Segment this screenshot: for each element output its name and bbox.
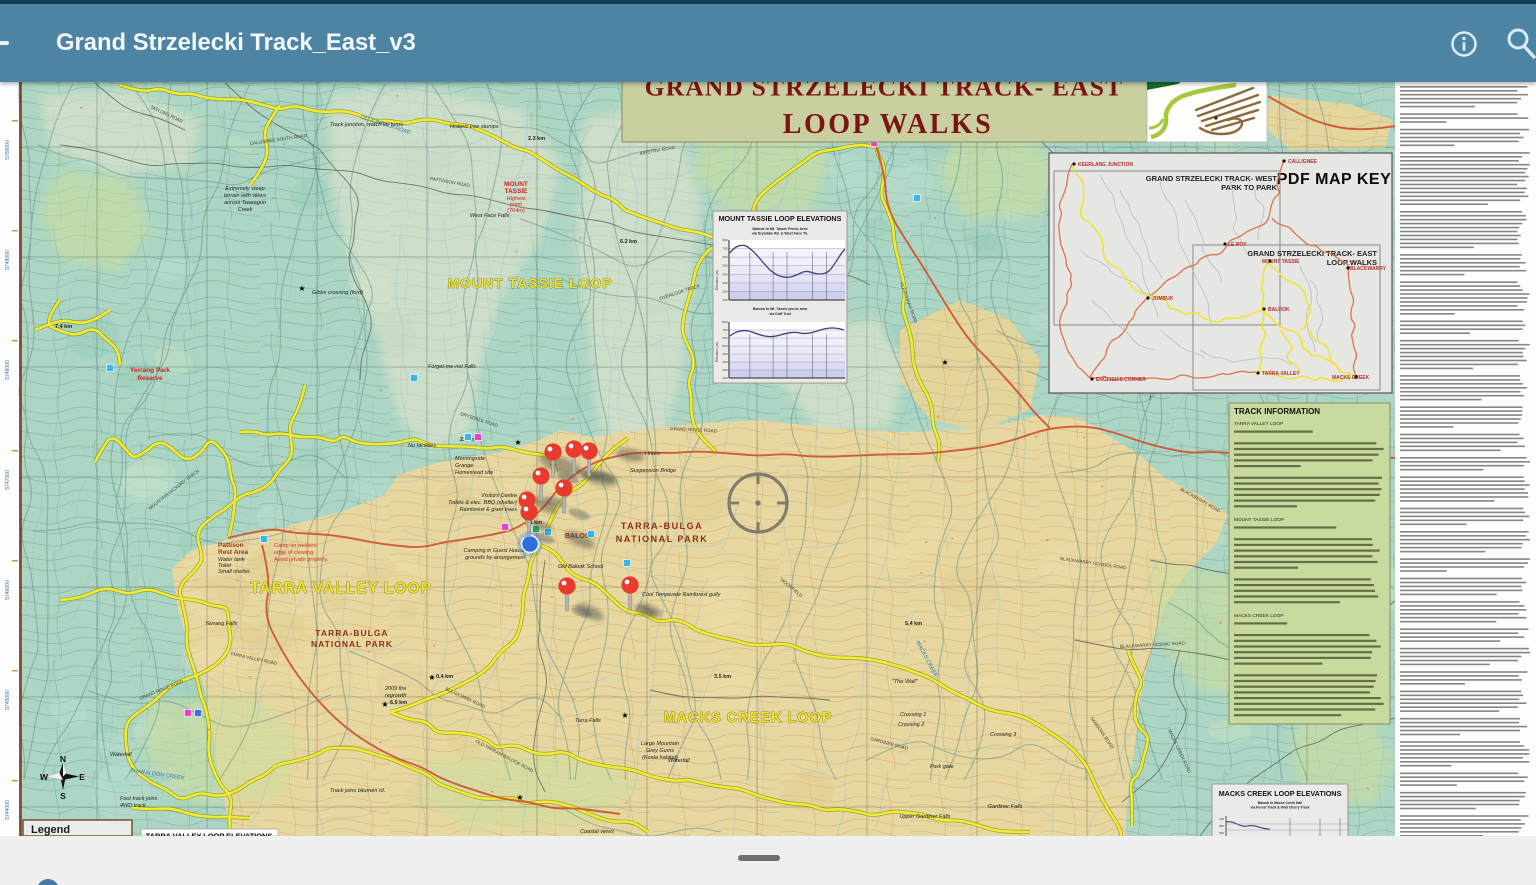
svg-text:via Drysdale Rd. & West Face T: via Drysdale Rd. & West Face Tk. [752,232,808,236]
svg-text:Forget-me-not Falls: Forget-me-not Falls [428,364,476,370]
svg-text:Gibbs crossing (ford): Gibbs crossing (ford) [312,290,363,296]
svg-text:LOOP WALKS: LOOP WALKS [783,109,993,140]
svg-text:LE ROY: LE ROY [1228,242,1247,248]
svg-text:2.3 km: 2.3 km [528,136,545,142]
svg-text:MOUNT TASSIE LOOP: MOUNT TASSIE LOOP [447,275,612,291]
svg-text:MOUNT TASSIE LOOP: MOUNT TASSIE LOOP [1234,517,1284,523]
svg-text:MOUNT TASSIE: MOUNT TASSIE [1262,259,1300,265]
svg-text:Camp on western: Camp on western [274,543,317,549]
svg-text:300: 300 [722,360,727,364]
svg-text:Camping in Guest House: Camping in Guest House [464,548,525,554]
svg-text:5745000: 5745000 [5,690,11,710]
svg-text:"The Wall": "The Wall" [892,679,919,685]
svg-text:Extremely steep: Extremely steep [225,186,264,192]
svg-text:regrowth: regrowth [385,693,406,699]
svg-text:via Duff Trail: via Duff Trail [769,312,791,316]
svg-text:100: 100 [722,376,727,380]
svg-text:TARRA-BULGA: TARRA-BULGA [621,521,703,531]
svg-text:NATIONAL PARK: NATIONAL PARK [311,639,393,649]
svg-text:6.5 km: 6.5 km [390,700,407,706]
svg-text:Coastal views: Coastal views [580,829,614,835]
svg-text:PARK TO PARK: PARK TO PARK [1221,183,1277,192]
svg-text:MOUNT: MOUNT [504,181,528,188]
svg-text:BALOOK: BALOOK [1268,307,1290,313]
svg-text:E: E [79,772,85,782]
svg-text:Large Mountain: Large Mountain [641,741,679,747]
svg-text:600: 600 [722,336,727,340]
svg-text:★: ★ [621,711,628,720]
svg-text:5.4 km: 5.4 km [905,621,922,627]
svg-text:0.4 km: 0.4 km [436,674,453,680]
svg-text:via Forest Track & Wild Cherry: via Forest Track & Wild Cherry Track [1251,806,1310,810]
svg-text:Foot track joins: Foot track joins [120,796,158,802]
svg-text:600: 600 [722,255,727,259]
svg-text:Avoid private property.: Avoid private property. [274,557,329,563]
svg-text:100: 100 [722,298,727,302]
svg-text:GRAND STRZELECKI TRACK- WEST: GRAND STRZELECKI TRACK- WEST [1146,174,1278,183]
svg-text:No facilities: No facilities [408,443,436,449]
svg-text:CALLIGNEE: CALLIGNEE [1288,159,1318,165]
svg-text:500: 500 [1219,824,1224,828]
svg-text:500: 500 [722,264,727,268]
svg-text:Rest Area: Rest Area [218,549,248,556]
svg-text:5744000: 5744000 [5,800,11,820]
svg-text:700: 700 [722,328,727,332]
svg-text:200: 200 [722,289,727,293]
svg-text:MACKS CREEK LOOP: MACKS CREEK LOOP [663,710,832,726]
svg-text:500: 500 [722,344,727,348]
svg-text:TARRA VALLEY: TARRA VALLEY [1262,371,1300,377]
svg-text:KEERLANG JUNCTION: KEERLANG JUNCTION [1078,162,1133,168]
svg-text:(764m): (764m) [507,208,525,214]
svg-text:Yerrang Park: Yerrang Park [130,367,170,374]
svg-text:★: ★ [428,673,435,682]
svg-text:JUMBUK: JUMBUK [1152,296,1174,302]
svg-text:TARRA VALLEY LOOP: TARRA VALLEY LOOP [250,580,432,597]
svg-text:Balook to Mt. Tassie Picnic Ar: Balook to Mt. Tassie Picnic Area [753,227,809,231]
svg-text:Legend: Legend [31,824,70,836]
svg-text:MOUNT TASSIE LOOP ELEVATIONS: MOUNT TASSIE LOOP ELEVATIONS [719,214,842,223]
svg-text:edge of clearing.: edge of clearing. [274,550,315,556]
svg-text:GRAND STRZELECKI TRACK- EAST: GRAND STRZELECKI TRACK- EAST [1247,249,1377,258]
svg-text:Creek: Creek [238,207,253,213]
svg-text:Tarra Falls: Tarra Falls [575,718,601,724]
svg-text:MACKS CREEK: MACKS CREEK [1332,375,1370,381]
svg-text:6.2 km: 6.2 km [620,239,637,245]
svg-text:Suspension Bridge: Suspension Bridge [630,468,676,474]
svg-text:Morningside: Morningside [455,456,485,462]
svg-text:West Face Falls: West Face Falls [470,213,510,219]
svg-text:TARRA-BULGA: TARRA-BULGA [315,628,388,638]
svg-text:S: S [60,791,66,801]
svg-text:Elevation (m): Elevation (m) [715,342,719,362]
svg-text:Waterfall: Waterfall [668,758,690,764]
svg-text:Crossing 2: Crossing 2 [898,722,924,728]
svg-text:MACKS CREEK LOOP: MACKS CREEK LOOP [1234,613,1284,619]
svg-text:MACKS CREEK LOOP ELEVATIONS: MACKS CREEK LOOP ELEVATIONS [1219,789,1342,798]
svg-text:2009 fire: 2009 fire [384,686,406,692]
svg-text:Upper Gardiner Falls: Upper Gardiner Falls [899,814,950,820]
svg-text:Old Balook School: Old Balook School [558,564,604,570]
svg-text:Visitors Centre: Visitors Centre [481,493,517,499]
svg-text:Homestead site: Homestead site [455,470,493,476]
svg-text:800: 800 [722,238,727,242]
svg-text:Crossing 3: Crossing 3 [990,732,1017,738]
svg-text:N: N [60,754,66,764]
svg-text:★: ★ [298,284,305,293]
svg-text:Elevation (m): Elevation (m) [715,270,719,290]
svg-text:Reserve: Reserve [137,375,163,382]
svg-text:grounds by arrangement: grounds by arrangement [465,555,525,561]
svg-text:TARRA VALLEY LOOP: TARRA VALLEY LOOP [1234,421,1283,427]
svg-text:Track joins bitumen rd.: Track joins bitumen rd. [330,788,385,794]
svg-text:300: 300 [1219,831,1224,835]
svg-text:200: 200 [722,368,727,372]
svg-text:Waterfall: Waterfall [110,752,132,758]
svg-text:★: ★ [381,700,388,709]
svg-text:Toilets & elec. BBQ (shelter): Toilets & elec. BBQ (shelter) [448,500,517,506]
svg-text:5748000: 5748000 [5,360,11,380]
svg-text:800: 800 [722,320,727,324]
svg-text:BLACKWARRY: BLACKWARRY [1350,266,1387,272]
svg-text:5747000: 5747000 [5,470,11,490]
svg-text:Gardiner Falls: Gardiner Falls [988,804,1023,810]
svg-text:Grey Gums: Grey Gums [646,748,674,754]
svg-text:★: ★ [941,358,948,367]
svg-text:5746000: 5746000 [5,580,11,600]
svg-text:Yerrang Falls: Yerrang Falls [205,621,238,627]
svg-text:ENGLISH'S CORNER: ENGLISH'S CORNER [1096,377,1146,383]
svg-text:Small shelter: Small shelter [218,569,251,575]
svg-text:Balook to Mt. Tassie picnic ar: Balook to Mt. Tassie picnic area [753,307,808,311]
svg-text:across Twaragon: across Twaragon [224,200,266,206]
svg-text:5750000: 5750000 [5,140,11,160]
svg-text:7.4 km: 7.4 km [55,324,72,330]
svg-text:700: 700 [722,247,727,251]
svg-text:300: 300 [722,281,727,285]
svg-text:Park gate: Park gate [930,764,954,770]
svg-text:NATIONAL PARK: NATIONAL PARK [616,534,709,544]
svg-text:TRACK INFORMATION: TRACK INFORMATION [1234,407,1320,416]
svg-text:★: ★ [516,793,523,802]
svg-text:700: 700 [1219,817,1224,821]
svg-text:Balook to Macks Creek Hall: Balook to Macks Creek Hall [1258,801,1302,805]
svg-text:Grange: Grange [455,463,473,469]
svg-text:3.5 km: 3.5 km [714,674,731,680]
svg-text:Historic tree stumps: Historic tree stumps [450,124,499,130]
svg-text:Cool Temperate Rainforest gull: Cool Temperate Rainforest gully [642,592,722,598]
svg-text:TASSIE: TASSIE [505,188,529,195]
svg-text:4WD track: 4WD track [120,803,146,809]
svg-text:400: 400 [722,352,727,356]
svg-text:5749000: 5749000 [5,250,11,270]
svg-text:W: W [40,772,49,782]
svg-text:terrain with views: terrain with views [224,193,266,199]
svg-text:Rainforest & giant trees: Rainforest & giant trees [460,507,518,513]
svg-text:PDF MAP KEY: PDF MAP KEY [1277,171,1392,188]
svg-text:Crossing 1: Crossing 1 [900,712,926,718]
svg-text:★: ★ [514,438,521,447]
svg-text:Pattison: Pattison [218,542,244,549]
svg-text:400: 400 [722,272,727,276]
